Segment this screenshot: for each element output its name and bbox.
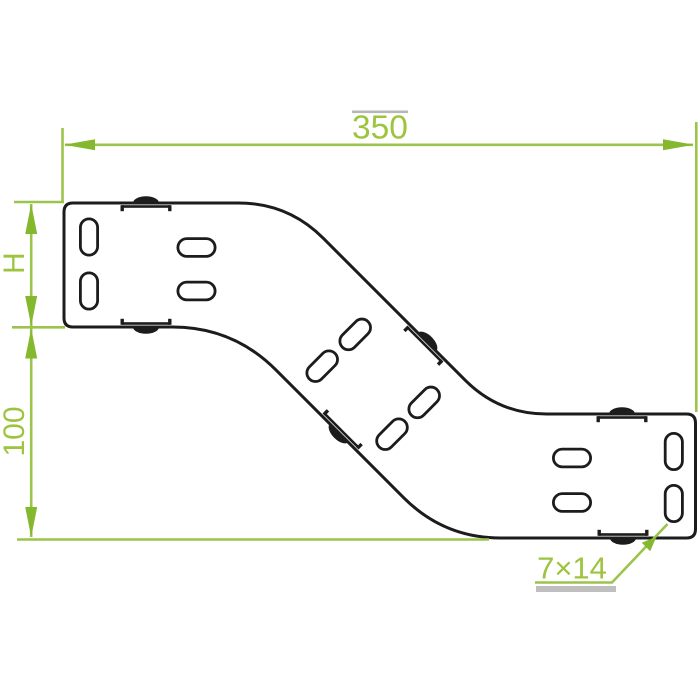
svg-text:350: 350 <box>352 109 408 146</box>
svg-text:7×14: 7×14 <box>537 551 607 586</box>
svg-text:100: 100 <box>0 406 31 456</box>
svg-text:H: H <box>0 252 31 274</box>
